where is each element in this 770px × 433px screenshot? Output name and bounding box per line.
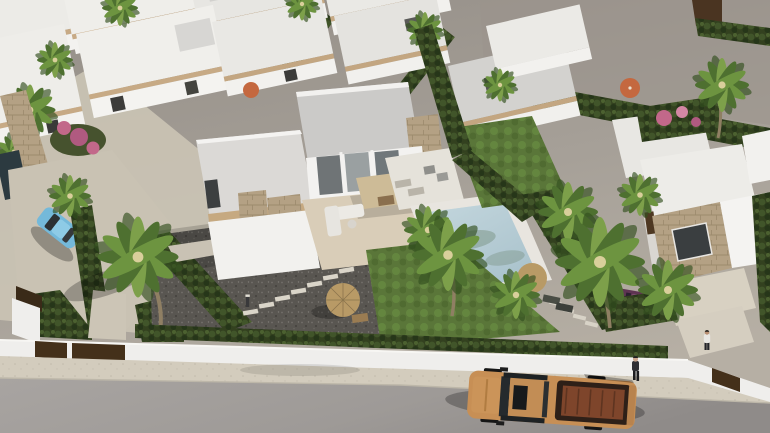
bougainvillea <box>676 106 688 118</box>
wing-facade <box>208 210 320 280</box>
orange-parasol <box>243 82 259 98</box>
person-leg <box>705 342 707 350</box>
scene-canvas <box>0 0 770 433</box>
parasol-pole <box>628 86 631 89</box>
bougainvillea <box>70 128 88 146</box>
coffee-table <box>348 220 357 229</box>
bougainvillea <box>691 117 701 127</box>
garage-gate <box>72 343 125 361</box>
bollard-light <box>246 296 249 307</box>
person-leg <box>637 371 640 381</box>
bougainvillea <box>87 142 100 155</box>
truck-mirror <box>500 367 508 372</box>
bougainvillea <box>57 121 71 135</box>
truck-bed-floor <box>561 386 625 420</box>
truck-sunroof <box>512 385 528 410</box>
window <box>672 223 712 261</box>
aerial-render-scene <box>0 0 770 433</box>
garage-gate <box>35 341 67 359</box>
bougainvillea <box>656 110 672 126</box>
person-torso <box>632 361 639 371</box>
person-leg <box>633 370 636 380</box>
parasol-seams <box>326 283 360 317</box>
person-torso <box>704 334 710 343</box>
truck-mirror <box>496 421 504 426</box>
hedge-shadow <box>240 364 360 376</box>
person-leg <box>707 342 709 350</box>
bollard-light-cap <box>245 295 249 297</box>
